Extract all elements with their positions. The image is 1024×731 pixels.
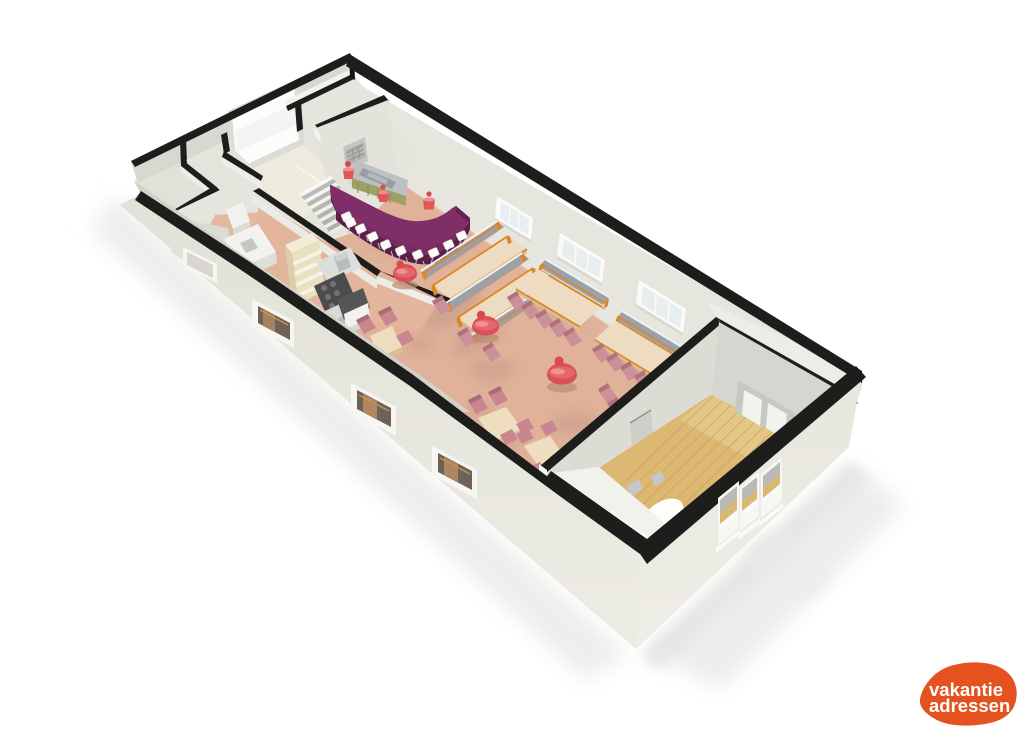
svg-text:adressen: adressen (929, 695, 1010, 716)
